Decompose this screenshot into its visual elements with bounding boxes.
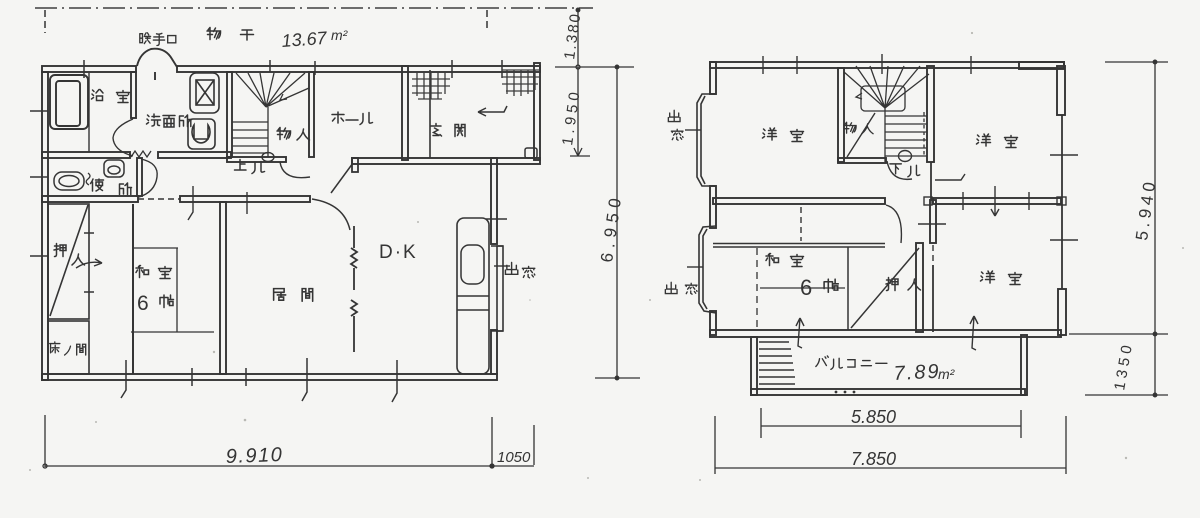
svg-text:13.67: 13.67: [281, 28, 328, 51]
svg-text:6: 6: [800, 275, 812, 300]
svg-text:1050: 1050: [497, 449, 531, 466]
svg-text:7.850: 7.850: [851, 449, 896, 469]
svg-text:m²: m²: [331, 27, 349, 43]
svg-text:5.850: 5.850: [851, 407, 896, 427]
svg-text:9.910: 9.910: [225, 444, 283, 468]
svg-text:7.89: 7.89: [893, 361, 941, 385]
svg-text:6: 6: [137, 292, 149, 315]
svg-text:D·K: D·K: [379, 242, 418, 263]
svg-text:m²: m²: [938, 366, 956, 382]
